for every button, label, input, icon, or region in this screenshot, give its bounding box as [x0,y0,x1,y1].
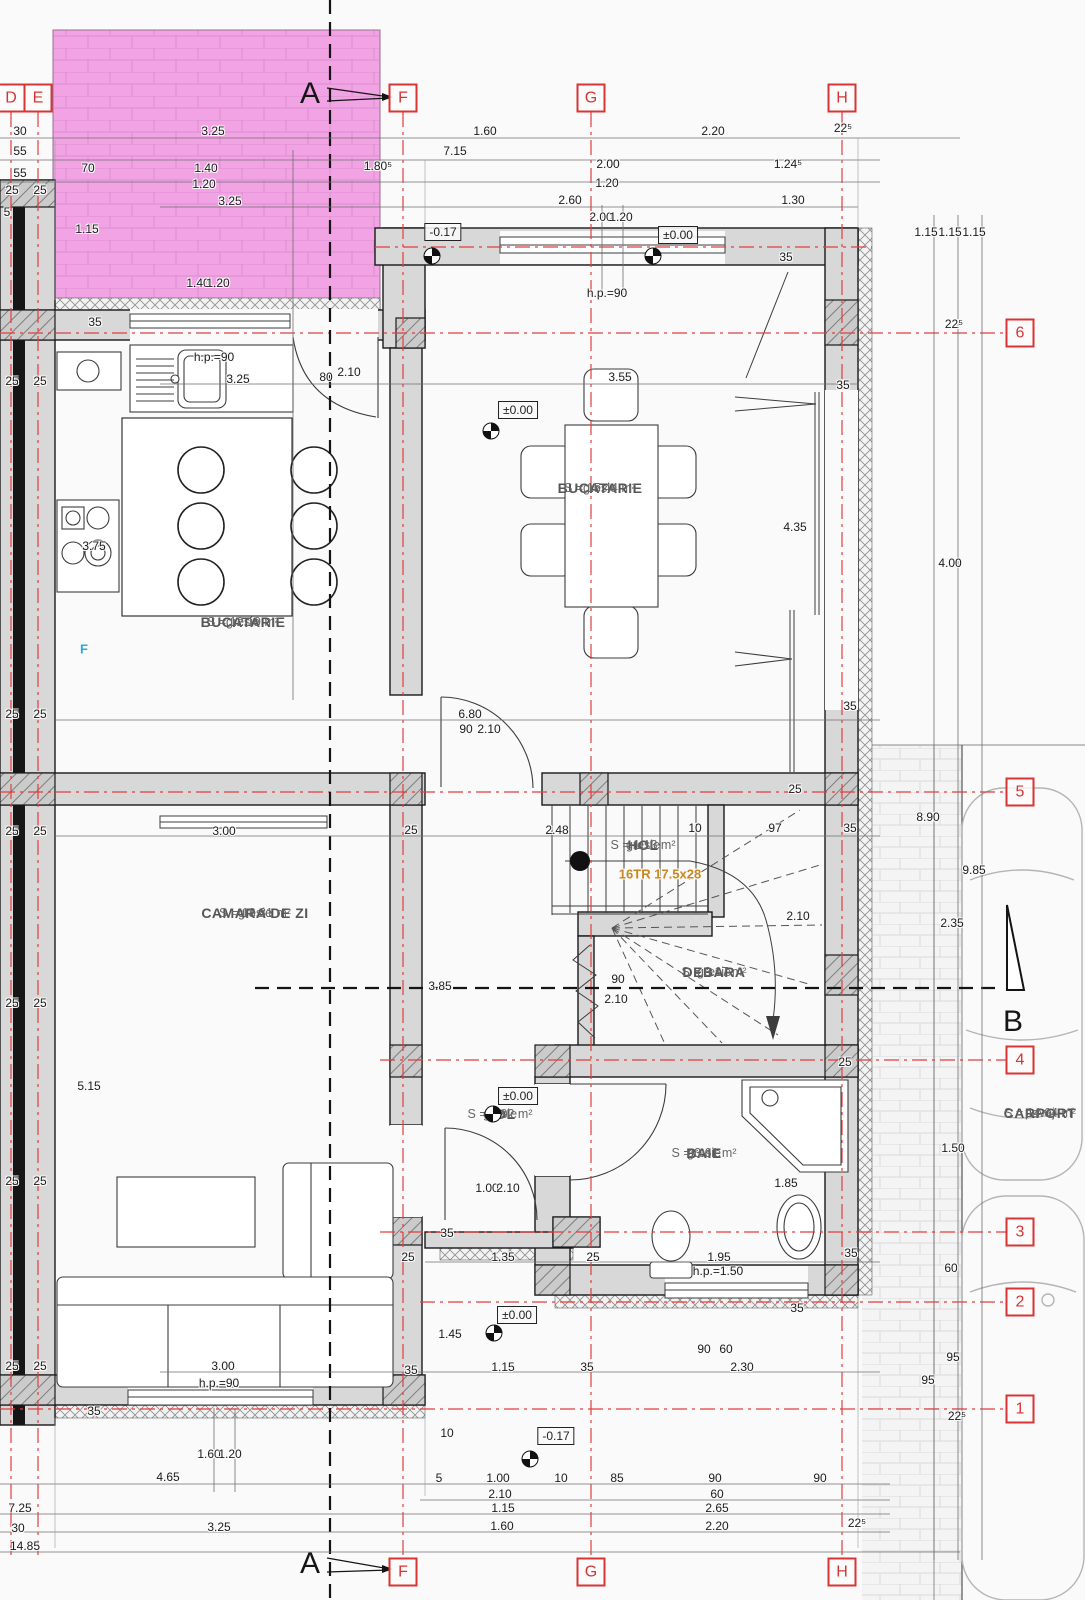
stair-start-dot [570,851,590,871]
floor-plan-sheet: 303.251.602.2022⁵557.1555701.401.80⁵2.00… [0,0,1085,1600]
plan-drawing [0,0,1085,1600]
toilet [652,1211,690,1261]
